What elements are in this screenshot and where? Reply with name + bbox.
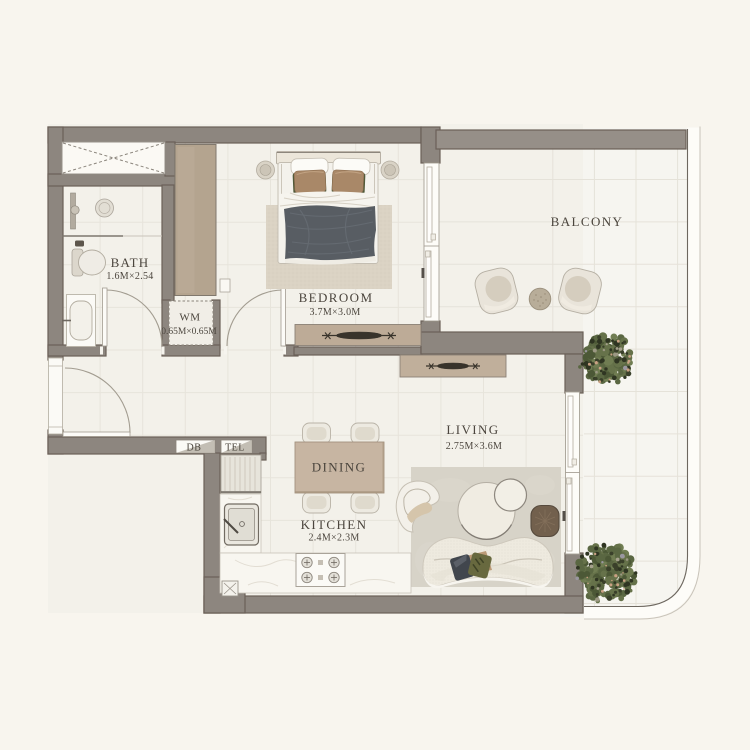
svg-text:2.75M×3.6M: 2.75M×3.6M bbox=[446, 441, 502, 452]
svg-text:KITCHEN: KITCHEN bbox=[301, 517, 368, 532]
svg-text:0.65M×0.65M: 0.65M×0.65M bbox=[161, 327, 217, 337]
svg-text:BEDROOM: BEDROOM bbox=[299, 290, 374, 305]
svg-text:WM: WM bbox=[179, 312, 200, 324]
svg-text:3.7M×3.0M: 3.7M×3.0M bbox=[309, 307, 360, 318]
svg-text:TEL: TEL bbox=[225, 443, 245, 454]
svg-text:2.4M×2.3M: 2.4M×2.3M bbox=[308, 533, 359, 544]
svg-text:DB: DB bbox=[187, 443, 202, 454]
svg-text:BALCONY: BALCONY bbox=[551, 214, 624, 229]
svg-text:DINING: DINING bbox=[312, 460, 367, 475]
svg-text:LIVING: LIVING bbox=[446, 422, 499, 437]
svg-text:1.6M×2.54: 1.6M×2.54 bbox=[106, 271, 153, 282]
svg-text:BATH: BATH bbox=[111, 255, 150, 270]
